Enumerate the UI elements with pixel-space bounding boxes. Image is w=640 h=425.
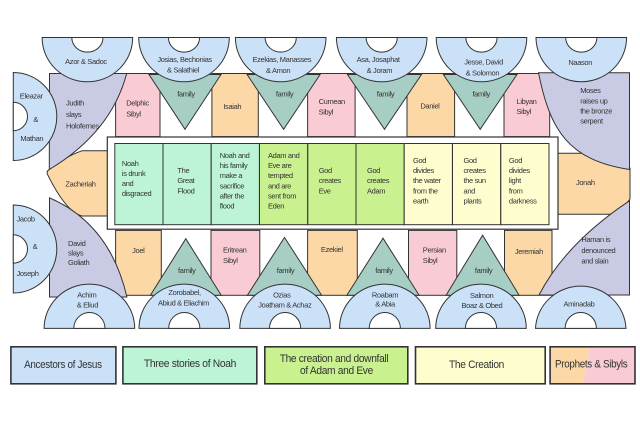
svg-text:tempted: tempted xyxy=(268,171,293,180)
svg-text:from the: from the xyxy=(413,186,438,195)
svg-text:is drunk: is drunk xyxy=(122,169,146,178)
svg-text:plants: plants xyxy=(464,196,483,205)
svg-text:Naason: Naason xyxy=(568,58,592,67)
svg-text:Haman is: Haman is xyxy=(581,235,610,244)
svg-text:Ezekias, Manasses: Ezekias, Manasses xyxy=(252,55,311,64)
svg-text:Joatham & Achaz: Joatham & Achaz xyxy=(258,301,312,310)
svg-text:Abiud & Eliachim: Abiud & Eliachim xyxy=(158,299,209,308)
svg-text:Eden: Eden xyxy=(268,202,284,211)
svg-text:Josias, Bechonias: Josias, Bechonias xyxy=(157,55,212,64)
svg-text:slays: slays xyxy=(66,110,82,119)
svg-text:denounced: denounced xyxy=(581,246,615,255)
svg-text:the sun: the sun xyxy=(464,176,486,185)
svg-text:Sibyl: Sibyl xyxy=(319,108,334,117)
svg-text:Delphic: Delphic xyxy=(126,99,149,108)
svg-text:Sibyl: Sibyl xyxy=(126,109,141,118)
svg-text:& Amon: & Amon xyxy=(266,66,290,75)
svg-text:divides: divides xyxy=(509,166,530,175)
svg-text:divides: divides xyxy=(413,166,434,175)
svg-text:The creation and downfall: The creation and downfall xyxy=(280,353,389,365)
svg-text:after the: after the xyxy=(220,191,245,200)
svg-text:Eve are: Eve are xyxy=(268,161,292,170)
svg-text:Holofernes: Holofernes xyxy=(66,122,99,131)
svg-text:The Creation: The Creation xyxy=(449,359,504,371)
svg-text:earth: earth xyxy=(413,196,429,205)
svg-text:Daniel: Daniel xyxy=(420,102,440,111)
svg-text:the bronze: the bronze xyxy=(580,107,612,116)
svg-text:Aminadab: Aminadab xyxy=(564,299,595,308)
svg-text:from: from xyxy=(509,186,523,195)
svg-text:and: and xyxy=(464,186,476,195)
svg-text:Ezekiel: Ezekiel xyxy=(321,245,343,254)
svg-text:Boaz & Obed: Boaz & Obed xyxy=(462,301,503,310)
svg-text:creates: creates xyxy=(367,176,390,185)
svg-text:David: David xyxy=(68,239,86,248)
svg-text:& Eliud: & Eliud xyxy=(77,300,98,309)
svg-text:family: family xyxy=(277,266,295,275)
svg-text:& Joram: & Joram xyxy=(367,66,393,75)
svg-text:Zorobabel,: Zorobabel, xyxy=(168,288,201,297)
svg-text:Jesse, David: Jesse, David xyxy=(464,58,503,67)
svg-text:family: family xyxy=(377,89,395,98)
svg-text:& Salathiel: & Salathiel xyxy=(167,66,200,75)
svg-text:Flood: Flood xyxy=(177,186,194,195)
svg-text:Goliath: Goliath xyxy=(68,258,89,267)
svg-text:Great: Great xyxy=(177,176,195,185)
svg-text:family: family xyxy=(472,89,490,98)
svg-text:Eritrean: Eritrean xyxy=(223,246,247,255)
svg-text:the water: the water xyxy=(413,176,442,185)
svg-text:God: God xyxy=(509,156,522,165)
svg-text:family: family xyxy=(178,266,196,275)
svg-text:family: family xyxy=(177,89,195,98)
svg-text:Libyan: Libyan xyxy=(517,97,537,106)
svg-text:make a: make a xyxy=(220,171,244,180)
svg-text:Azor & Sadoc: Azor & Sadoc xyxy=(65,57,107,66)
svg-text:Mathan: Mathan xyxy=(20,134,43,143)
svg-text:&: & xyxy=(33,115,38,124)
svg-text:God: God xyxy=(413,156,426,165)
svg-text:Ancestors of Jesus: Ancestors of Jesus xyxy=(24,359,102,371)
svg-text:Prophets & Sibyls: Prophets & Sibyls xyxy=(555,358,628,370)
svg-text:family: family xyxy=(375,266,393,275)
svg-text:Salmon: Salmon xyxy=(470,291,494,300)
svg-text:darkness: darkness xyxy=(509,196,537,205)
svg-text:Roabam: Roabam xyxy=(372,291,398,300)
svg-text:flood: flood xyxy=(220,202,235,211)
svg-text:family: family xyxy=(276,89,294,98)
svg-text:Joel: Joel xyxy=(132,246,145,255)
svg-text:Joseph: Joseph xyxy=(16,269,38,278)
svg-text:Adam: Adam xyxy=(367,186,385,195)
svg-text:Jeremiah: Jeremiah xyxy=(515,247,543,256)
svg-text:Moses: Moses xyxy=(580,86,601,95)
svg-text:and are: and are xyxy=(268,181,291,190)
svg-text:creates: creates xyxy=(464,166,487,175)
svg-text:Noah: Noah xyxy=(122,159,139,168)
svg-text:sacrifice: sacrifice xyxy=(220,181,245,190)
svg-text:Eve: Eve xyxy=(319,186,331,195)
svg-text:and slain: and slain xyxy=(581,257,608,266)
svg-text:light: light xyxy=(509,176,522,185)
svg-text:and: and xyxy=(122,179,134,188)
svg-text:Adam and: Adam and xyxy=(268,151,300,160)
svg-text:Noah and: Noah and xyxy=(220,151,250,160)
svg-text:disgraced: disgraced xyxy=(122,189,152,198)
svg-text:Sibyl: Sibyl xyxy=(517,107,532,116)
svg-text:God: God xyxy=(464,156,477,165)
svg-text:family: family xyxy=(475,266,493,275)
svg-text:slays: slays xyxy=(68,248,84,257)
svg-text:Persian: Persian xyxy=(423,245,446,254)
svg-text:Ozias: Ozias xyxy=(273,290,291,299)
svg-text:Jacob: Jacob xyxy=(16,215,34,224)
svg-text:Achim: Achim xyxy=(77,290,96,299)
svg-text:God: God xyxy=(319,166,332,175)
svg-text:Isaiah: Isaiah xyxy=(223,102,241,111)
svg-text:The: The xyxy=(177,166,189,175)
svg-text:Judith: Judith xyxy=(66,99,84,108)
svg-text:raises up: raises up xyxy=(580,97,607,106)
svg-text:creates: creates xyxy=(319,176,342,185)
svg-text:Three stories of Noah: Three stories of Noah xyxy=(144,358,236,370)
svg-text:his family: his family xyxy=(220,161,248,170)
svg-text:Sibyl: Sibyl xyxy=(223,256,238,265)
svg-text:&: & xyxy=(33,242,38,251)
svg-text:Zacheriah: Zacheriah xyxy=(65,180,95,189)
svg-text:Eleazar: Eleazar xyxy=(20,92,44,101)
svg-text:Sibyl: Sibyl xyxy=(423,256,438,265)
svg-text:& Solomon: & Solomon xyxy=(466,69,500,78)
svg-text:sent from: sent from xyxy=(268,191,296,200)
svg-text:Jonah: Jonah xyxy=(576,178,595,187)
svg-text:of Adam and Eve: of Adam and Eve xyxy=(300,365,373,377)
svg-text:Cumean: Cumean xyxy=(319,97,345,106)
svg-text:Asa, Josaphat: Asa, Josaphat xyxy=(357,55,401,64)
svg-text:God: God xyxy=(367,166,380,175)
svg-text:serpent: serpent xyxy=(580,117,604,126)
svg-text:& Abia: & Abia xyxy=(375,300,396,309)
